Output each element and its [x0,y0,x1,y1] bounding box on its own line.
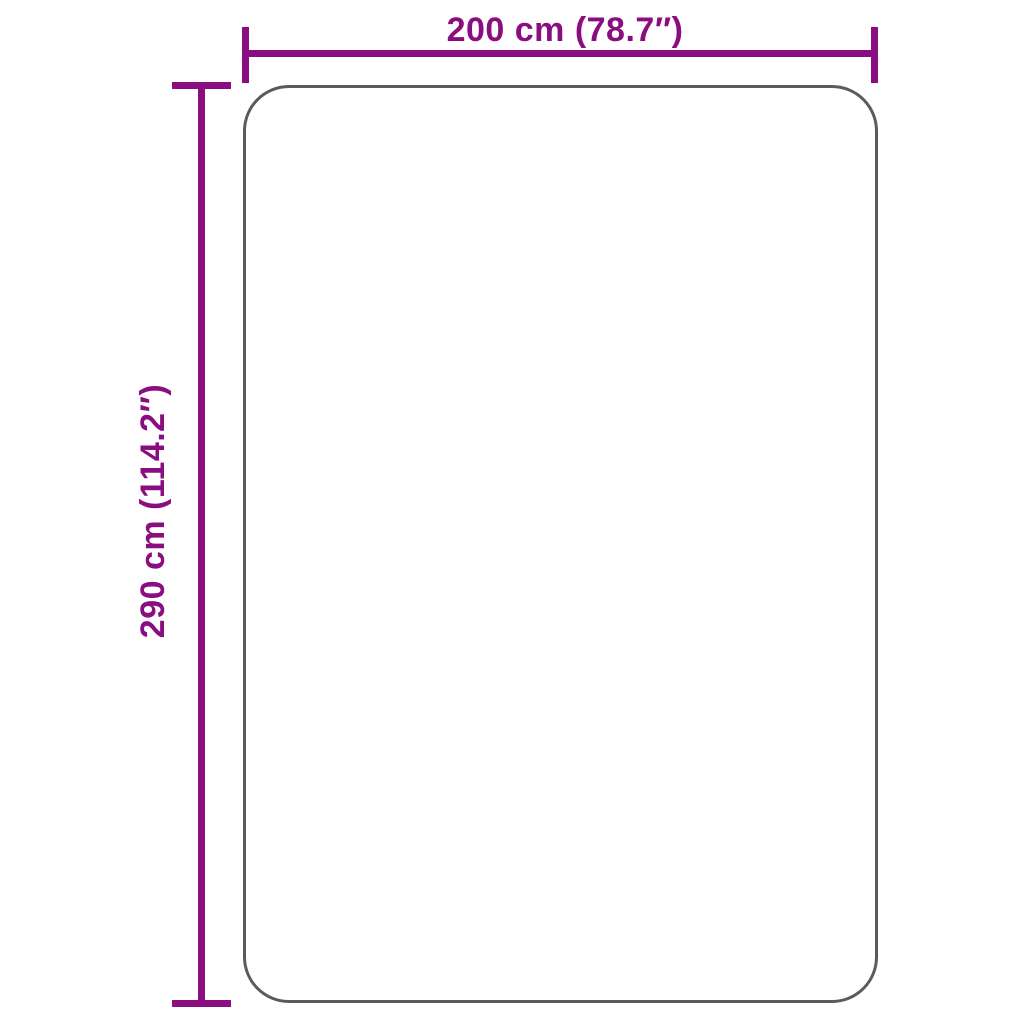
height-dimension-label: 290 cm (114.2″) [136,384,170,638]
height-dimension-tick-bottom [172,1000,231,1007]
height-dimension-line [198,85,205,1003]
width-dimension-tick-right [871,27,878,83]
width-dimension-line [242,50,878,57]
dimension-diagram: 200 cm (78.7″) 290 cm (114.2″) [0,0,1024,1024]
height-dimension-tick-top [172,82,231,89]
width-dimension-label: 200 cm (78.7″) [447,13,684,47]
rug-outline [243,85,878,1003]
width-dimension-tick-left [242,27,249,83]
